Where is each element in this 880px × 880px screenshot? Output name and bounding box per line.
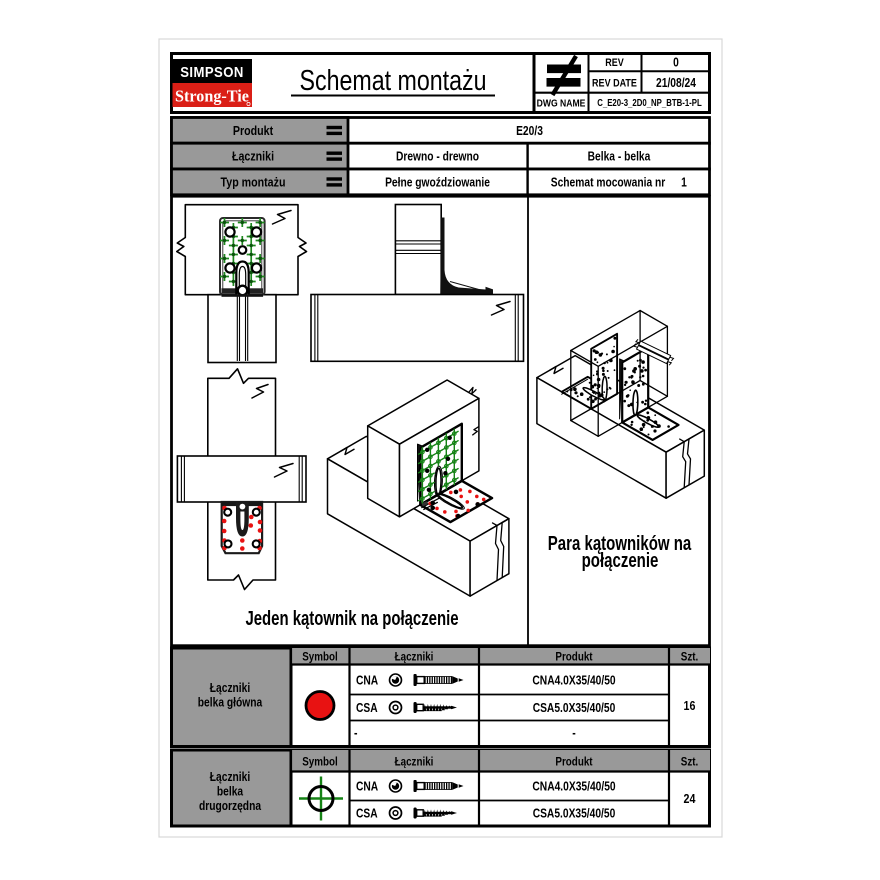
svg-text:Symbol: Symbol — [302, 755, 338, 769]
svg-text:Łączniki: Łączniki — [232, 149, 274, 164]
svg-text:Produkt: Produkt — [233, 123, 274, 138]
svg-text:Łączniki: Łączniki — [395, 650, 434, 664]
svg-text:Łączniki: Łączniki — [210, 770, 250, 784]
svg-text:1: 1 — [681, 176, 687, 190]
svg-text:Jeden kątownik na połączenie: Jeden kątownik na połączenie — [245, 608, 458, 630]
svg-text:REV DATE: REV DATE — [592, 78, 637, 90]
svg-text:Schemat mocowania nr: Schemat mocowania nr — [551, 176, 666, 190]
svg-text:CNA: CNA — [356, 780, 378, 794]
svg-text:Produkt: Produkt — [555, 755, 592, 769]
svg-text:Pełne gwoździowanie: Pełne gwoździowanie — [385, 176, 490, 190]
svg-text:Szt.: Szt. — [681, 650, 699, 664]
svg-text:-: - — [354, 725, 358, 740]
svg-text:Łączniki: Łączniki — [395, 755, 434, 769]
svg-text:0: 0 — [673, 56, 679, 70]
svg-text:Symbol: Symbol — [302, 650, 338, 664]
svg-text:drugorzędna: drugorzędna — [199, 799, 262, 813]
svg-text:Drewno - drewno: Drewno - drewno — [396, 150, 479, 164]
svg-text:Belka - belka: Belka - belka — [588, 150, 652, 164]
svg-text:C_E20-3_2D0_NP_BTB-1-PL: C_E20-3_2D0_NP_BTB-1-PL — [597, 98, 702, 109]
svg-text:CSA5.0X35/40/50: CSA5.0X35/40/50 — [533, 701, 616, 715]
svg-text:-: - — [572, 725, 576, 740]
svg-text:Schemat montażu: Schemat montażu — [300, 65, 487, 97]
svg-text:E20/3: E20/3 — [516, 124, 543, 138]
svg-text:Strong-Tie: Strong-Tie — [175, 87, 249, 106]
svg-text:CNA: CNA — [356, 674, 378, 688]
svg-text:Typ montażu: Typ montażu — [221, 175, 286, 190]
svg-text:16: 16 — [684, 698, 696, 713]
svg-text:belka główna: belka główna — [198, 696, 263, 710]
svg-text:CSA5.0X35/40/50: CSA5.0X35/40/50 — [533, 807, 616, 821]
svg-text:21/08/24: 21/08/24 — [656, 76, 696, 90]
svg-text:belka: belka — [217, 785, 244, 799]
svg-text:Łączniki: Łączniki — [210, 681, 250, 695]
svg-text:REV: REV — [605, 57, 624, 69]
svg-text:SIMPSON: SIMPSON — [180, 64, 244, 81]
svg-text:CNA4.0X35/40/50: CNA4.0X35/40/50 — [532, 780, 615, 794]
svg-text:Produkt: Produkt — [555, 650, 592, 664]
svg-text:24: 24 — [684, 791, 697, 806]
svg-text:Szt.: Szt. — [681, 755, 699, 769]
svg-text:CNA4.0X35/40/50: CNA4.0X35/40/50 — [532, 674, 615, 688]
svg-text:CSA: CSA — [356, 807, 378, 821]
svg-text:CSA: CSA — [356, 701, 378, 715]
svg-text:DWG NAME: DWG NAME — [537, 98, 586, 110]
svg-text:połączenie: połączenie — [582, 550, 659, 572]
